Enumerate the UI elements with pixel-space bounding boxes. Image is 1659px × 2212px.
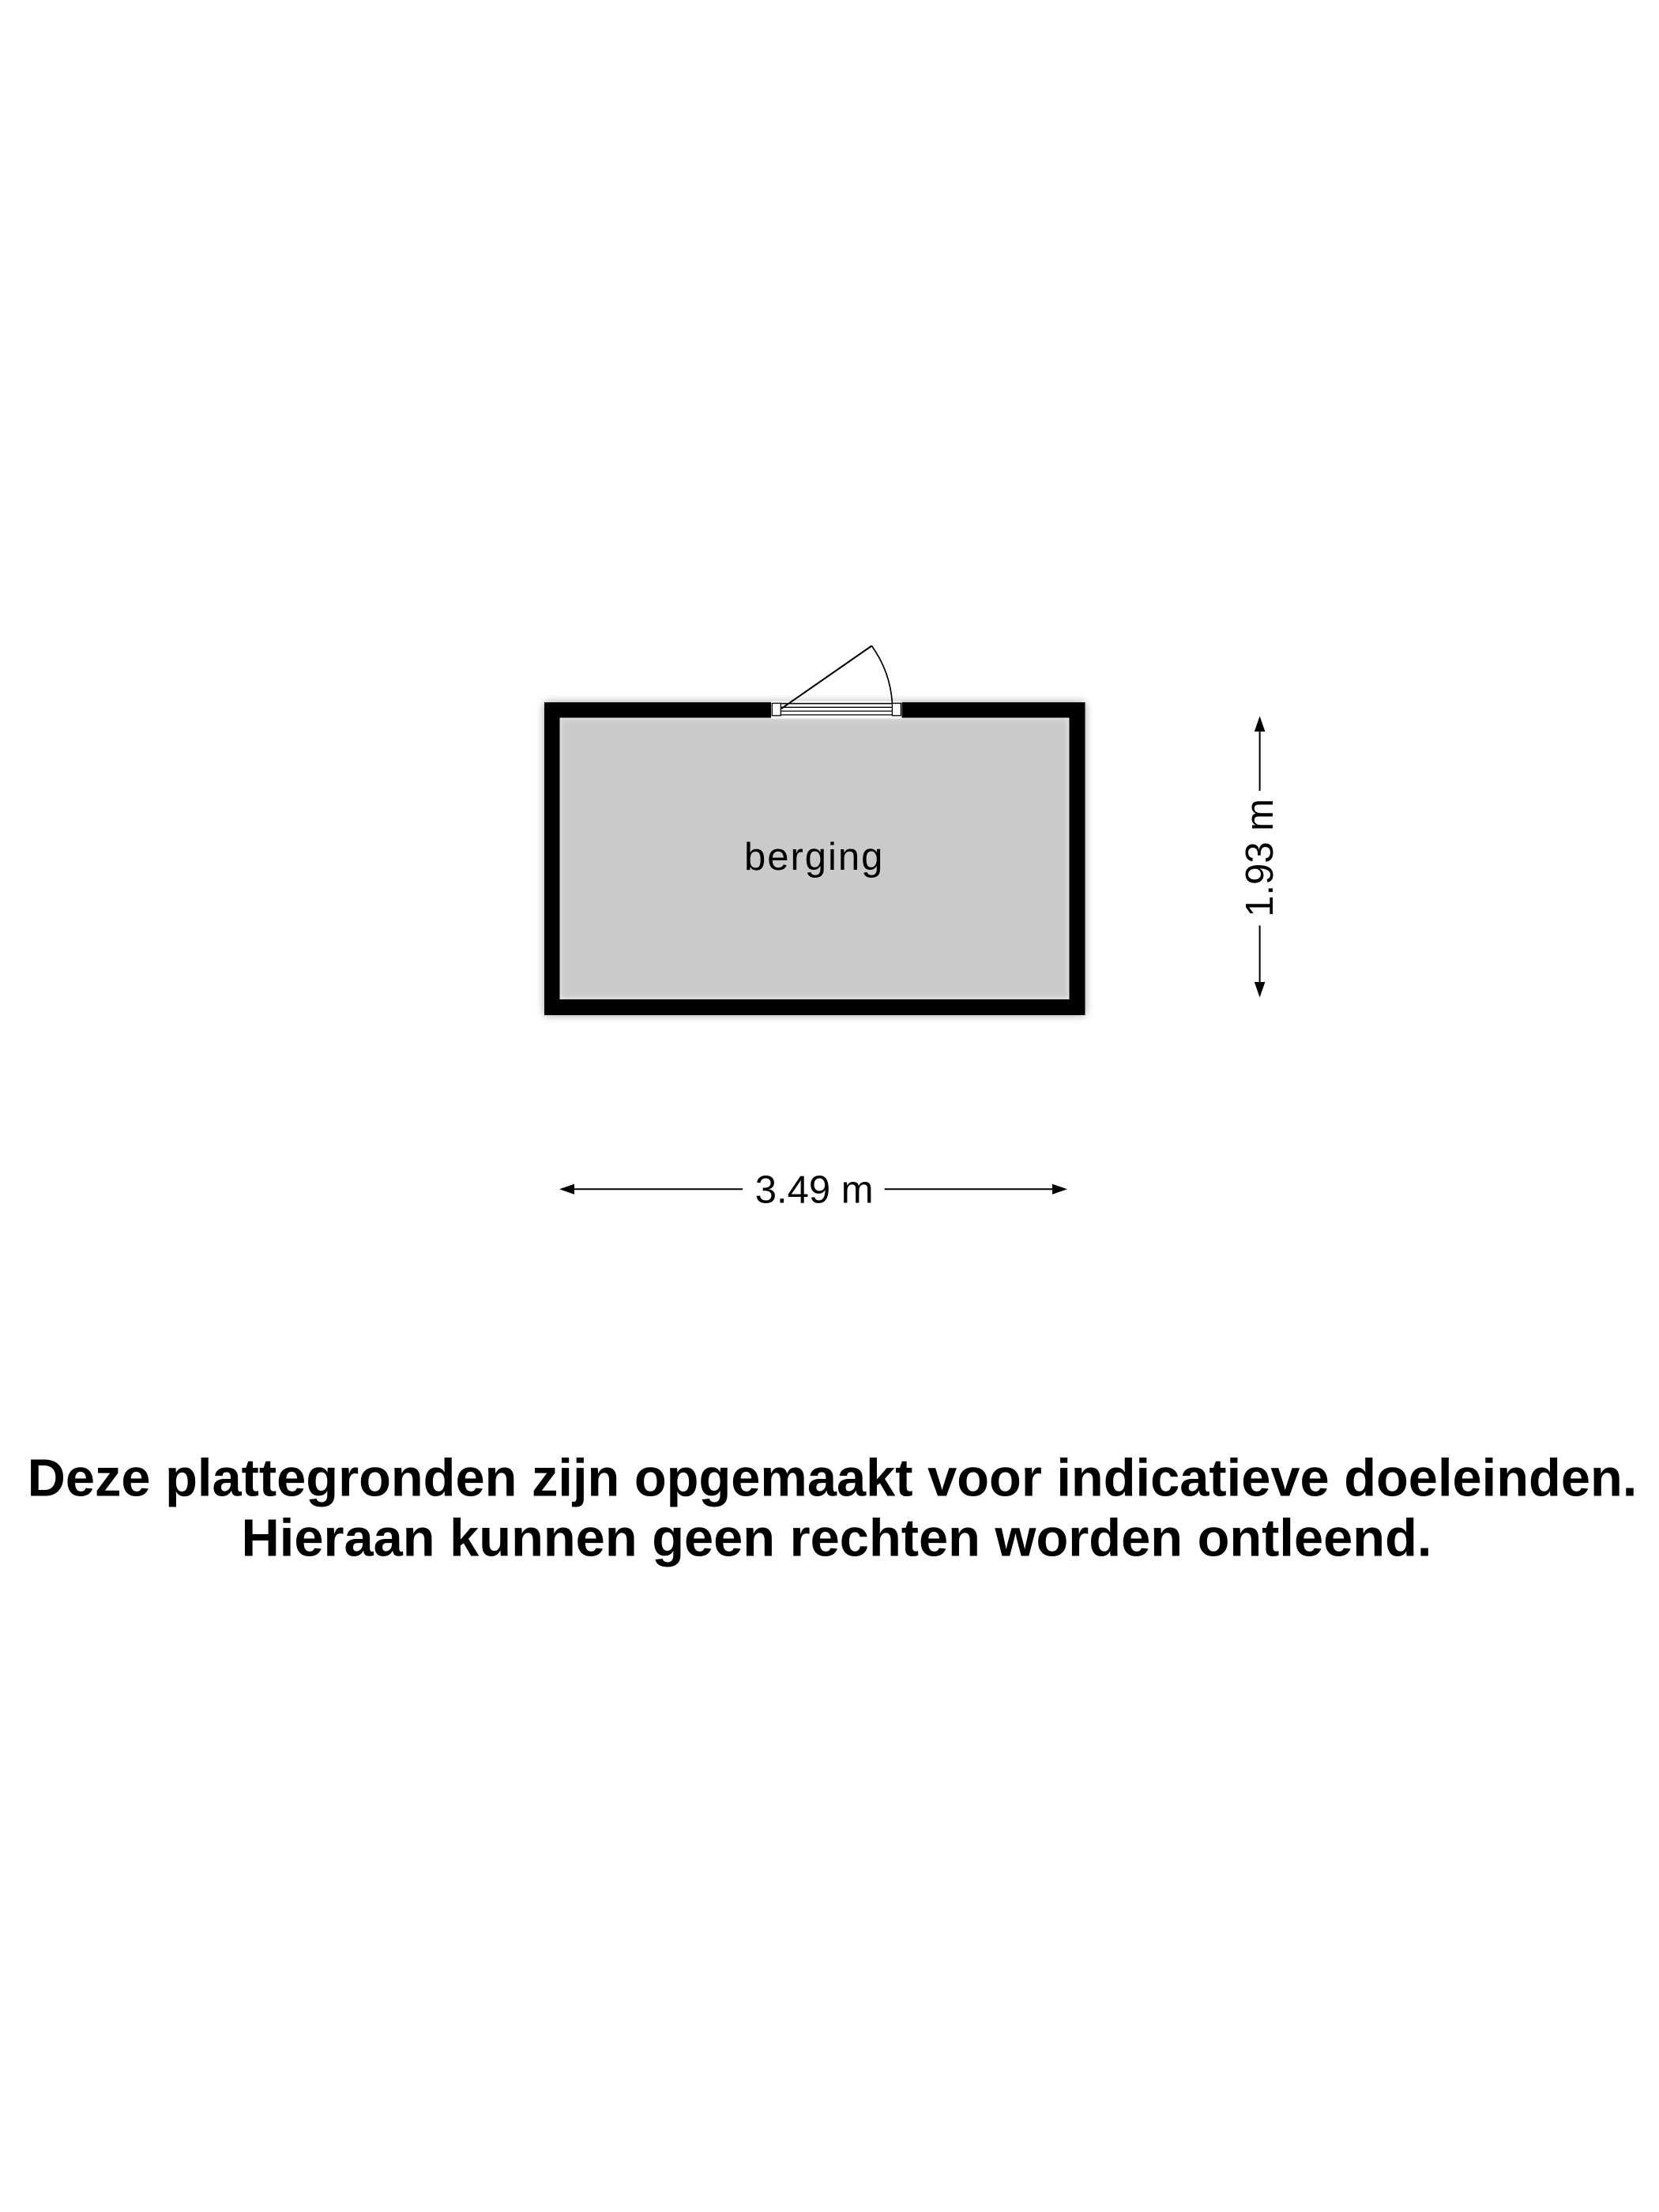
svg-text:1.93 m: 1.93 m — [1239, 799, 1281, 917]
svg-text:3.49 m: 3.49 m — [755, 1168, 874, 1211]
svg-text:Deze plattegronden zijn opgema: Deze plattegronden zijn opgemaakt voor i… — [28, 1449, 1638, 1507]
svg-text:berging: berging — [744, 836, 884, 878]
svg-text:Hieraan kunnen geen rechten wo: Hieraan kunnen geen rechten worden ontle… — [242, 1509, 1432, 1567]
